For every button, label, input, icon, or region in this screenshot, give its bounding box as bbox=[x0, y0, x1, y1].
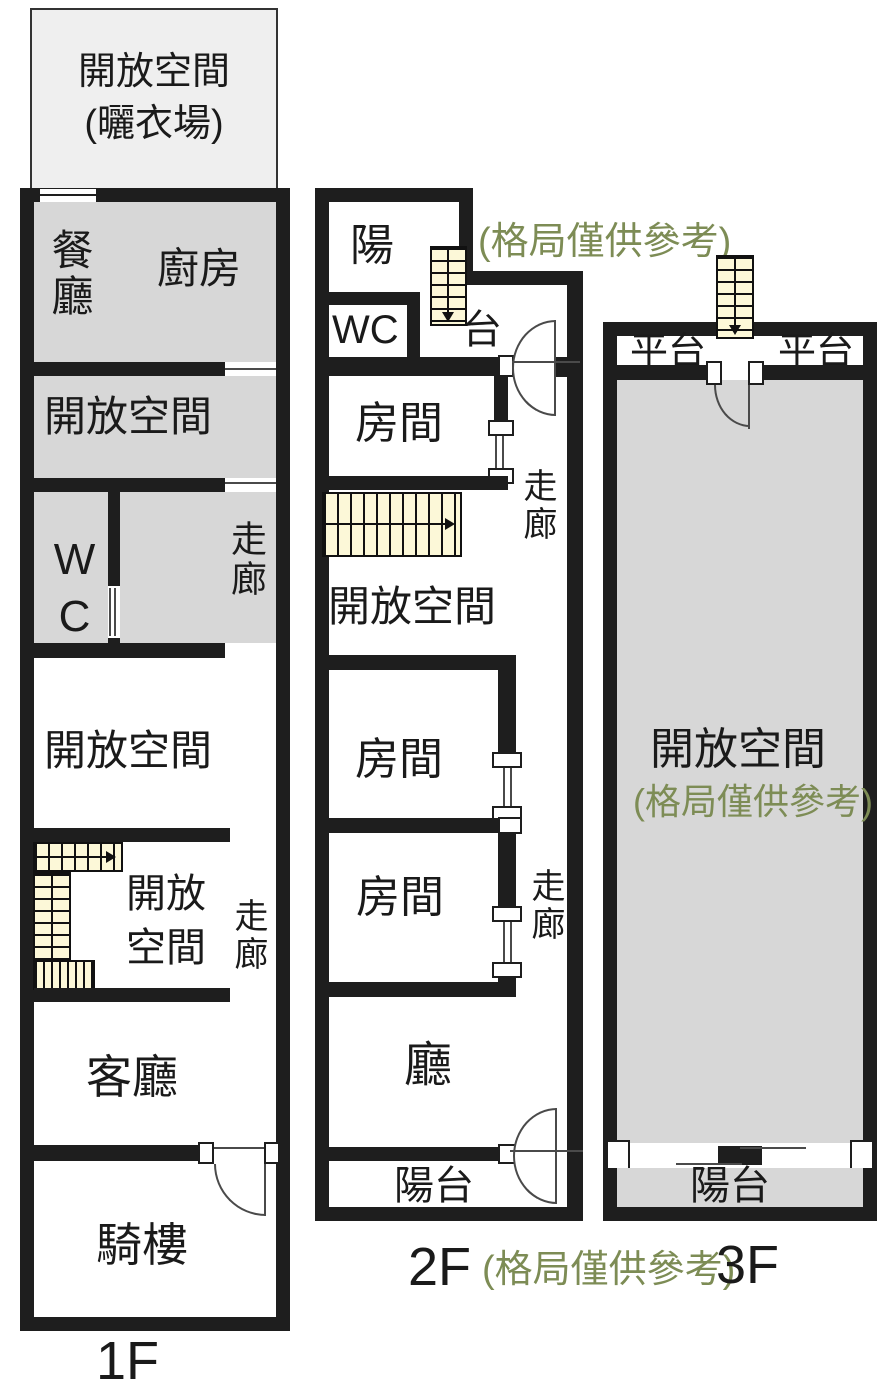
f2-staircase-arrow bbox=[442, 312, 454, 322]
f2-bedroom-top-label: 房間 bbox=[355, 400, 443, 448]
f2-bedroom-middle-label: 房間 bbox=[355, 736, 443, 784]
f3-staircase-centerline bbox=[734, 257, 736, 327]
f2-wc-label: WC bbox=[332, 308, 399, 352]
f3-staircase-arrow bbox=[729, 325, 741, 335]
f2-sliding-door-jamb bbox=[492, 752, 522, 768]
f2-sliding-door-line bbox=[503, 922, 505, 962]
f3-window-jamb bbox=[606, 1140, 630, 1170]
f1-open-middle-label: 開放空間 bbox=[44, 728, 212, 774]
f2-wall bbox=[315, 188, 329, 1221]
f2-door-leaf bbox=[512, 361, 580, 363]
f3-window-line bbox=[740, 1147, 806, 1149]
f2-sliding-door-jamb bbox=[488, 420, 514, 436]
f3-wall bbox=[762, 365, 863, 380]
f3-window-jamb bbox=[850, 1140, 874, 1170]
f1-drying-area-box: 開放空間 (曬衣場) bbox=[30, 8, 278, 190]
f1-wall bbox=[34, 643, 225, 658]
f1-door-jamb bbox=[198, 1142, 214, 1164]
f1-dining-label: 餐廳 bbox=[48, 228, 90, 320]
f1-wall bbox=[34, 362, 225, 376]
f1-door-opening-line bbox=[225, 482, 276, 484]
f2-balcony-top-label-char2: 台 bbox=[462, 308, 502, 352]
f1-staircase-centerline bbox=[51, 874, 53, 960]
f2-wall bbox=[315, 818, 498, 833]
f2-sliding-door-line bbox=[502, 436, 504, 468]
f1-drying-area-label-line1: 開放空間 bbox=[78, 52, 230, 94]
f2-sliding-door-line bbox=[503, 768, 505, 806]
f1-wall bbox=[34, 988, 230, 1002]
f2-hall-label: 廳 bbox=[404, 1040, 452, 1093]
f1-corridor-upper-label: 走廊 bbox=[228, 520, 264, 600]
f2-wall bbox=[315, 476, 508, 490]
f2-wall bbox=[315, 188, 473, 202]
f1-door-opening-line bbox=[225, 368, 276, 370]
f3-balcony-label: 陽台 bbox=[690, 1164, 770, 1208]
f2-wall bbox=[315, 1147, 498, 1161]
f2-wall bbox=[459, 271, 583, 285]
f3-wall bbox=[617, 365, 708, 380]
f1-staircase-bottom-run bbox=[33, 960, 95, 990]
f3-door-leaf bbox=[748, 385, 750, 429]
f1-sliding-door-line bbox=[109, 588, 111, 636]
f1-drying-area-label-line2: (曬衣場) bbox=[84, 104, 223, 146]
f2-wall bbox=[315, 1207, 583, 1221]
f1-wall bbox=[34, 828, 230, 842]
floorplan-canvas: 開放空間 (曬衣場) 餐廳 廚房 開放空間 WC 走廊 開放空間 bbox=[0, 0, 889, 1394]
f2-sliding-door-jamb bbox=[492, 906, 522, 922]
f1-window-line bbox=[40, 194, 96, 196]
f1-open-lower-label-line2: 空間 bbox=[126, 926, 206, 970]
f2-sliding-door-line bbox=[510, 768, 512, 806]
f1-wc-label: WC bbox=[52, 535, 96, 649]
f1-sliding-door-line bbox=[114, 588, 116, 636]
f2-open-area-label: 開放空間 bbox=[328, 584, 496, 630]
f1-door-leaf bbox=[214, 1147, 264, 1149]
f2-swing-door-top bbox=[512, 320, 556, 416]
f2-caption: 2F bbox=[408, 1238, 471, 1297]
f3-door-jamb bbox=[748, 361, 764, 385]
f2-corridor-upper-label: 走廊 bbox=[520, 468, 554, 544]
f2-door-jamb bbox=[498, 817, 522, 834]
f2-wall bbox=[567, 271, 583, 1221]
f2-sliding-door-line bbox=[495, 436, 497, 468]
f2-sliding-door-line bbox=[510, 922, 512, 962]
f2-staircase-arrow bbox=[445, 518, 455, 530]
f2-note-top: (格局僅供參考) bbox=[478, 222, 731, 264]
f1-wall bbox=[34, 478, 225, 492]
f1-open-upper-label: 開放空間 bbox=[44, 394, 212, 440]
f1-staircase-arrow bbox=[106, 851, 116, 863]
f3-caption: 3F bbox=[716, 1236, 779, 1295]
f2-wall bbox=[315, 655, 516, 670]
f2-corridor-lower-label: 走廊 bbox=[528, 868, 562, 944]
f2-bedroom-lower-label: 房間 bbox=[356, 874, 444, 922]
f2-note-bottom: (格局僅供參考) bbox=[482, 1250, 735, 1292]
f1-living-room-label: 客廳 bbox=[86, 1052, 178, 1103]
f2-door-leaf bbox=[510, 1150, 583, 1152]
f2-balcony-top-label-char1: 陽 bbox=[350, 222, 394, 270]
f2-staircase-centerline bbox=[447, 248, 449, 314]
f1-door-leaf bbox=[264, 1164, 266, 1216]
f2-staircase-centerline bbox=[324, 523, 452, 525]
f3-open-area-label: 開放空間 bbox=[650, 726, 826, 774]
f3-note: (格局僅供參考) bbox=[633, 782, 873, 822]
f1-staircase-centerline bbox=[35, 856, 113, 858]
f1-kitchen-label: 廚房 bbox=[157, 246, 241, 292]
f1-door-jamb bbox=[264, 1142, 280, 1164]
f1-corridor-lower-label: 走廊 bbox=[231, 898, 265, 974]
f2-wall bbox=[329, 357, 500, 376]
f1-caption: 1F bbox=[96, 1332, 159, 1391]
f1-arcade-label: 騎樓 bbox=[96, 1220, 188, 1271]
f2-sliding-door-jamb bbox=[492, 962, 522, 978]
f3-door-jamb bbox=[706, 361, 722, 385]
f1-open-lower-label-line1: 開放 bbox=[126, 872, 206, 916]
f1-wall bbox=[34, 1145, 200, 1161]
f2-wall bbox=[315, 982, 516, 997]
f2-swing-door-bottom bbox=[513, 1108, 557, 1204]
f2-balcony-bottom-label: 陽台 bbox=[394, 1164, 474, 1208]
